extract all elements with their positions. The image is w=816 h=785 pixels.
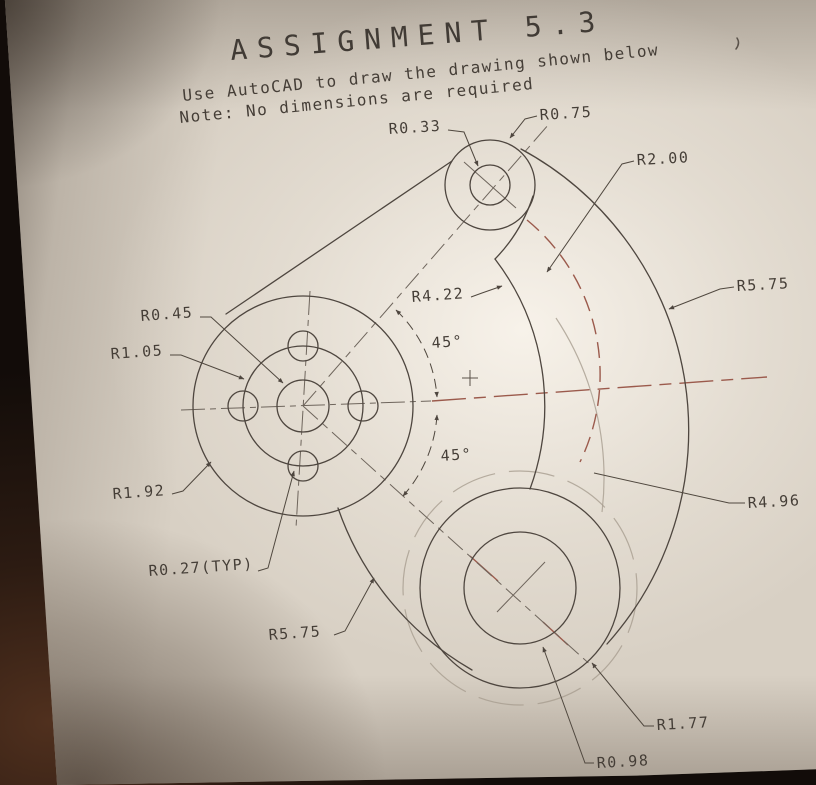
dim-label-r1-77: R1.77 (656, 713, 710, 734)
dim-label-r5-75-bottom: R5.75 (268, 622, 322, 644)
assignment-drawing: ASSIGNMENT 5.3 Use AutoCAD to draw the d… (0, 0, 816, 785)
dim-label-r1-05: R1.05 (110, 341, 164, 363)
dim-label-r2-00: R2.00 (636, 148, 690, 169)
r5-75-outer-right-arc (521, 149, 689, 644)
r2-00-construction-arc (527, 220, 600, 462)
dim-label-r0-33: R0.33 (388, 117, 442, 138)
leader-r0-98 (543, 647, 594, 763)
leader-r5-75-bottom (334, 578, 374, 635)
part-outline (193, 140, 689, 688)
dim-label-45-upper: 45° (431, 332, 464, 352)
leader-r1-92 (172, 462, 211, 494)
leader-r0-75 (510, 116, 537, 138)
dimension-labels: R0.33 R0.75 R2.00 R5.75 R4.22 45° 45° R0… (110, 103, 801, 772)
hub-vertical-centerline (296, 291, 310, 528)
leader-r1-05 (170, 355, 244, 379)
dim-label-r0-98: R0.98 (596, 751, 650, 772)
centerlines (181, 124, 594, 668)
upper-45-dim-arc (396, 310, 437, 397)
dim-label-r0-45: R0.45 (140, 303, 194, 325)
leader-r5-75-right (669, 287, 734, 309)
stray-pen-mark (736, 38, 738, 49)
top-boss-cross-tick (464, 162, 516, 208)
dim-label-r4-96: R4.96 (747, 491, 801, 512)
lower-45-dim-arc (403, 415, 437, 496)
dim-label-45-lower: 45° (440, 445, 473, 465)
leader-r0-45 (200, 317, 283, 383)
leader-r4-96 (594, 473, 745, 503)
red-centerlines (432, 220, 767, 645)
main-center-plus-mark (462, 370, 478, 386)
photo-scene: ASSIGNMENT 5.3 Use AutoCAD to draw the d… (0, 0, 816, 785)
r4-96-arc (556, 318, 604, 512)
r5-75-lower-left-arc (338, 508, 472, 670)
leader-r0-27 (258, 471, 294, 571)
dim-label-r1-92: R1.92 (112, 481, 166, 503)
r4-22-arc (495, 259, 545, 489)
diagonal-centerline-top (303, 124, 549, 406)
dim-label-r5-75-right: R5.75 (736, 274, 790, 295)
leader-r4-22 (471, 286, 502, 297)
r2-00-fillet-arc (495, 196, 533, 259)
dim-label-r4-22: R4.22 (411, 284, 465, 306)
bottom-boss-cross-tick (497, 562, 545, 612)
dim-label-r0-75: R0.75 (539, 103, 593, 124)
dim-label-r0-27-typ: R0.27(TYP) (148, 555, 254, 580)
